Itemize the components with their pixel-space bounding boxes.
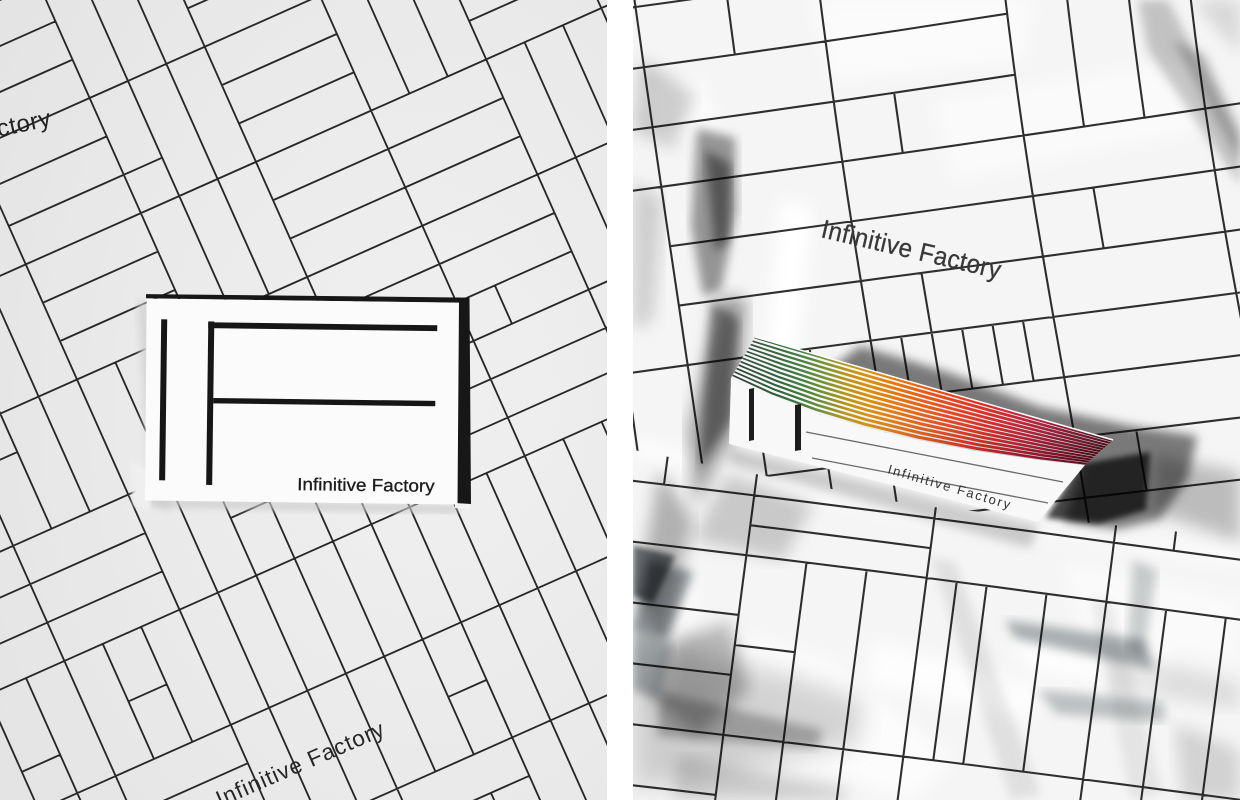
svg-text:Infinitive Factory: Infinitive Factory (297, 474, 435, 496)
